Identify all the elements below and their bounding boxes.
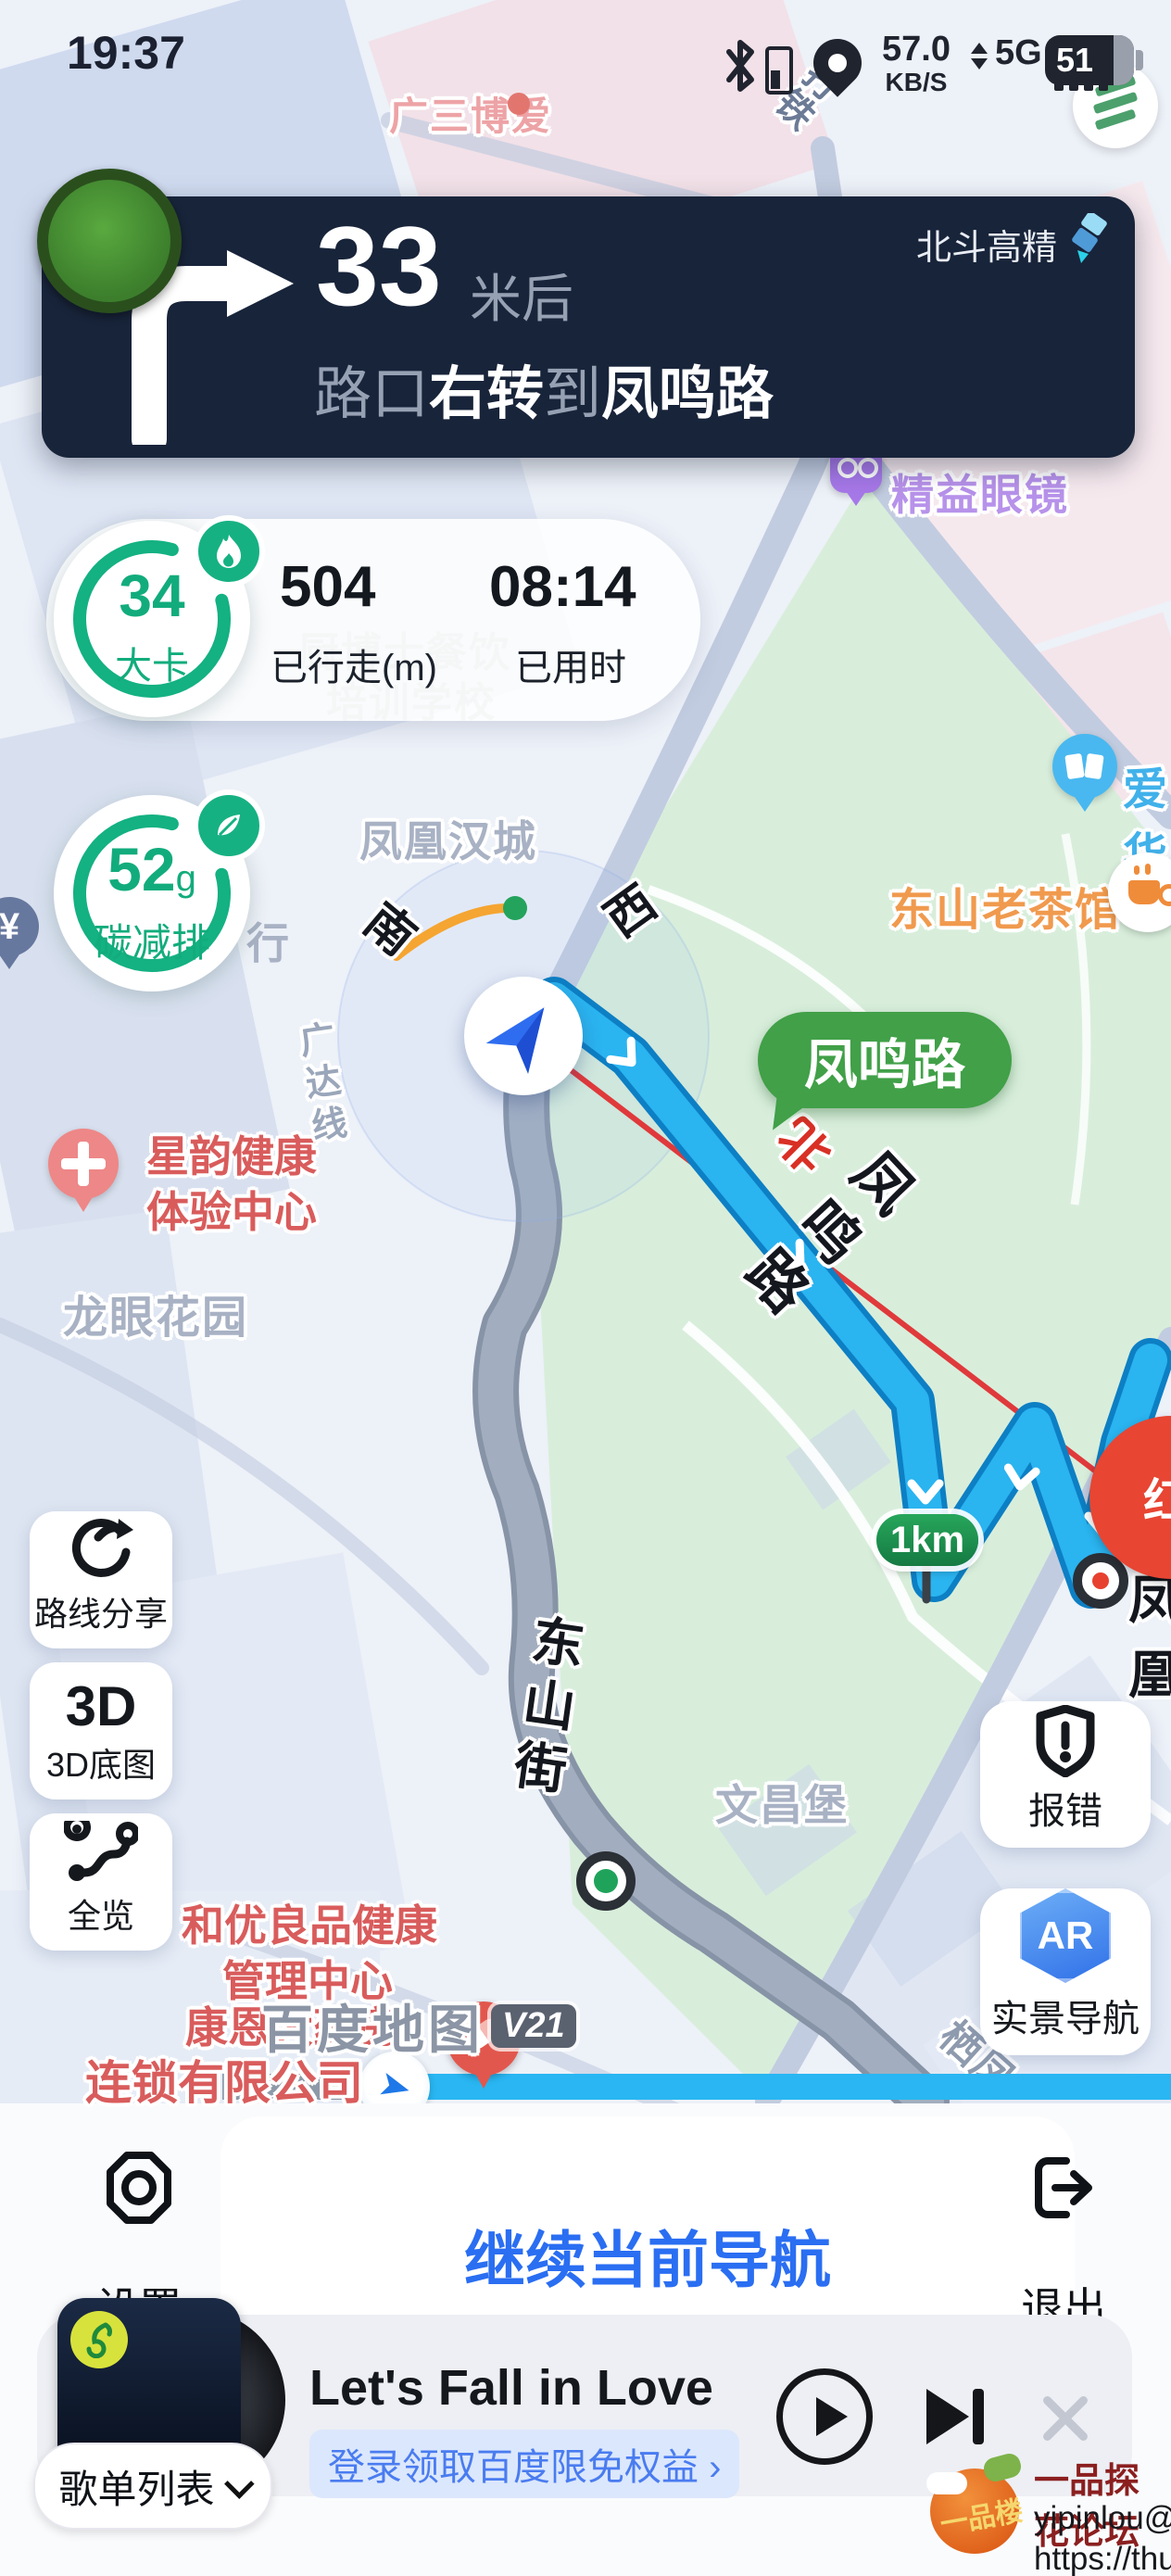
bluetooth-icon xyxy=(724,37,756,95)
route-overview-label: 全览 xyxy=(68,1889,134,1938)
report-error-label: 报错 xyxy=(1028,1781,1102,1835)
continue-navigation-button[interactable]: 继续当前导航 xyxy=(220,2211,1075,2300)
playlist-button[interactable]: 歌单列表 xyxy=(33,2443,272,2530)
status-time: 19:37 xyxy=(67,26,185,80)
close-player-button[interactable] xyxy=(1036,2389,1095,2448)
ar-hexagon-icon: AR xyxy=(1017,1888,1114,1983)
baidu-map-walk-navigation: 厨博士餐饮 培训学校 广三博爱 打铁 凤凰汉城 南 西 北 精益眼镜 爱华 东山… xyxy=(0,0,1171,2576)
map-label-phoenix-town: 凤凰汉城 xyxy=(359,808,537,869)
map-label-heyou-1: 和优良品健康 xyxy=(182,1892,437,1953)
exit-icon xyxy=(1024,2148,1103,2228)
satellite-icon xyxy=(1064,213,1113,265)
carbon-dial: 52g 碳减排 xyxy=(54,795,250,991)
battery-indicator: 51 xyxy=(1045,35,1134,85)
current-location-marker xyxy=(464,977,583,1095)
watermark-line2: yipinlou@pm.me xyxy=(1034,2500,1171,2537)
elapsed-time-label: 已用时 xyxy=(515,638,626,691)
next-track-button[interactable] xyxy=(926,2387,991,2446)
report-shield-icon xyxy=(1033,1705,1098,1777)
play-icon xyxy=(816,2397,848,2436)
turn-instruction-banner[interactable]: 北斗高精 33 米后 路口右转到凤鸣路 xyxy=(42,196,1135,458)
elapsed-time-value: 08:14 xyxy=(489,554,636,620)
share-route-icon xyxy=(67,1513,135,1582)
bluetooth-battery-icon xyxy=(765,46,793,95)
map-label-wenchang: 文昌堡 xyxy=(715,1772,849,1833)
overview-route-icon xyxy=(64,1821,138,1886)
calories-dial: 34 大卡 xyxy=(54,521,250,717)
report-error-button[interactable]: 报错 xyxy=(980,1701,1151,1848)
beidou-badge: 北斗高精 xyxy=(916,219,1057,270)
carbon-label: 碳减排 xyxy=(54,912,250,968)
walked-distance-value: 504 xyxy=(280,554,375,620)
ar-navigation-button[interactable]: AR 实景导航 xyxy=(980,1888,1151,2055)
next-track-icon xyxy=(926,2389,969,2444)
turn-distance: 33 xyxy=(316,209,442,322)
watermark-line3: https://thua9.info xyxy=(1034,2541,1171,2576)
poi-dot-red xyxy=(508,93,530,115)
map-label-bank-partial: 行 xyxy=(246,910,291,971)
gear-icon xyxy=(99,2148,179,2228)
route-share-button[interactable]: 路线分享 xyxy=(30,1511,172,1648)
exit-button[interactable]: 退出 xyxy=(989,2148,1138,2336)
baidu-map-logo: 百度地图 V21 xyxy=(261,1989,576,2064)
road-name-bubble[interactable]: 凤鸣路 xyxy=(758,1012,1012,1108)
map-label-top-pink: 广三博爱 xyxy=(389,85,552,142)
turn-instruction-text: 路口右转到凤鸣路 xyxy=(314,347,774,430)
qq-music-logo-icon xyxy=(70,2311,128,2368)
calories-unit: 大卡 xyxy=(54,636,250,689)
login-promo-link[interactable]: 登录领取百度限免权益 › xyxy=(309,2430,739,2498)
play-button[interactable] xyxy=(776,2368,873,2465)
map-label-health-center-1: 星韵健康 xyxy=(146,1123,317,1184)
route-start-marker xyxy=(576,1851,636,1911)
network-type: 5G xyxy=(995,33,1042,73)
playlist-label: 歌单列表 xyxy=(58,2458,214,2515)
aihua-pin[interactable] xyxy=(1052,734,1117,799)
network-speed: 57.0 KB/S xyxy=(882,32,951,95)
map-label-glasses-shop: 精益眼镜 xyxy=(891,461,1069,523)
watermark-logo: 一品楼 xyxy=(926,2457,1023,2554)
turn-distance-unit: 米后 xyxy=(470,258,573,333)
health-center-pin[interactable] xyxy=(48,1129,119,1199)
map-label-teahouse: 东山老茶馆 xyxy=(889,873,1121,938)
flame-icon xyxy=(193,515,265,587)
map-label-longyan: 龙眼花园 xyxy=(63,1281,248,1345)
battery-nub-icon xyxy=(1136,50,1143,70)
ar-navigation-label: 实景导航 xyxy=(991,1989,1140,2042)
map-label-phoenix-dest: 凤凰 xyxy=(1128,1559,1171,1709)
map-label-health-center-2: 体验中心 xyxy=(146,1179,317,1240)
distance-milestone-1km: 1km xyxy=(876,1514,978,1566)
updown-arrows-icon xyxy=(971,43,988,69)
song-title: Let's Fall in Love xyxy=(309,2359,713,2417)
leaf-icon xyxy=(193,789,265,862)
three-d-icon: 3D xyxy=(66,1679,137,1735)
walked-distance-label: 已行走(m) xyxy=(271,638,437,691)
traffic-light-indicator xyxy=(37,169,182,313)
location-icon xyxy=(803,29,872,97)
route-share-label: 路线分享 xyxy=(34,1587,168,1635)
map-3d-label: 3D底图 xyxy=(46,1738,156,1787)
chevron-down-icon xyxy=(224,2469,255,2499)
progress-track-remaining xyxy=(398,2074,1171,2100)
map-3d-button[interactable]: 3D 3D底图 xyxy=(30,1662,172,1799)
route-overview-button[interactable]: 全览 xyxy=(30,1813,172,1951)
